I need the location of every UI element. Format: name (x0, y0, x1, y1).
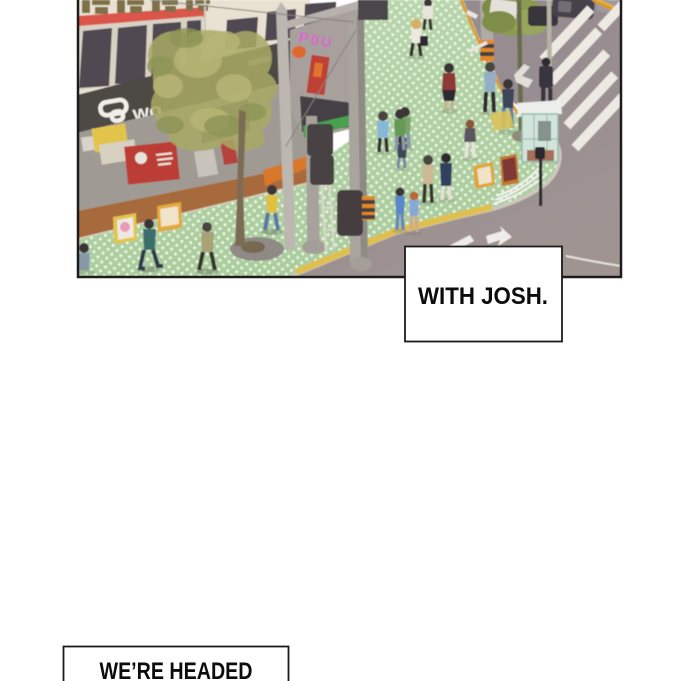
svg-text:WE’RE HEADED: WE’RE HEADED (100, 658, 253, 681)
svg-text:WITH JOSH.: WITH JOSH. (418, 283, 548, 310)
